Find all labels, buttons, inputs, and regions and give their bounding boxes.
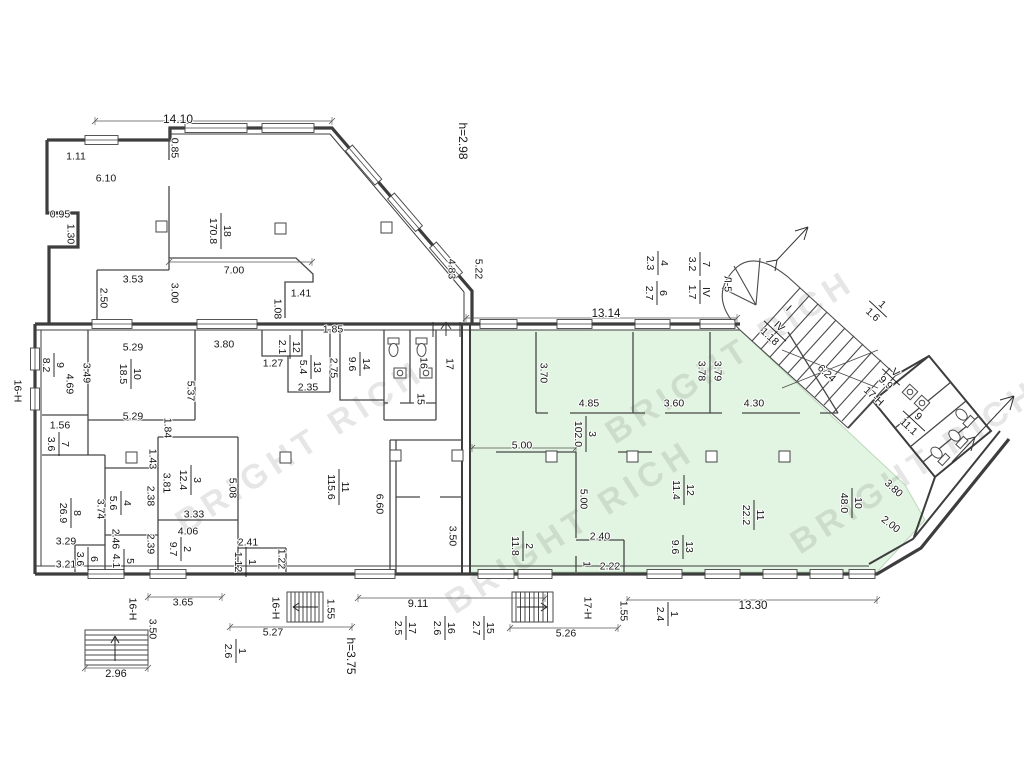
dim-label: 3.65 [173, 597, 194, 609]
fraction-label: 135.4 [297, 355, 323, 379]
svg-text:12.4: 12.4 [177, 470, 189, 491]
window-symbol [635, 320, 670, 329]
dim-label: 2.50 [97, 288, 109, 309]
dim-label: 2.75 [327, 358, 339, 379]
dim-label: 13.14 [592, 308, 621, 320]
dim-label: 1.11 [66, 151, 86, 163]
dim-label: 4.30 [744, 398, 765, 410]
svg-text:12: 12 [290, 341, 302, 353]
dim-label: 5.00 [512, 440, 533, 452]
staircase-bottom-left [85, 630, 148, 665]
window-symbol [88, 570, 124, 579]
toilet-icon [388, 338, 399, 357]
sink-icon [914, 395, 930, 411]
fraction-label: 826.9 [57, 498, 83, 528]
dim-label: 4.85 [579, 398, 600, 410]
svg-text:2: 2 [523, 543, 535, 549]
dim-label: 1.08 [271, 299, 283, 320]
svg-text:48.0: 48.0 [838, 493, 850, 514]
window-symbol [197, 320, 257, 329]
dim-label: 4.69 [63, 374, 75, 395]
svg-text:9.6: 9.6 [669, 540, 681, 555]
window-symbol [478, 570, 514, 579]
svg-text:5.4: 5.4 [297, 360, 309, 375]
svg-text:5.6: 5.6 [107, 496, 119, 511]
svg-text:1: 1 [668, 611, 680, 617]
svg-text:1: 1 [236, 648, 248, 654]
fraction-label: 18170.8 [207, 213, 233, 249]
dim-label: 5.29 [123, 342, 144, 354]
toilet-icon [416, 338, 427, 357]
dim-label: 16-Н [269, 597, 281, 620]
svg-text:2.6: 2.6 [222, 644, 234, 659]
dim-label: 0.95 [50, 209, 71, 221]
dim-label: 6.60 [373, 494, 385, 515]
window-symbol [518, 570, 552, 579]
svg-text:7: 7 [700, 261, 712, 267]
dim-label: 1.22 [275, 549, 287, 570]
fraction-label: 1018.5 [117, 359, 143, 389]
window-symbol [31, 388, 40, 410]
dim-label: 13.30 [739, 600, 768, 612]
fraction-label: 12.4 [654, 602, 680, 626]
svg-text:10: 10 [131, 368, 143, 380]
svg-text:2.4: 2.4 [654, 607, 666, 622]
dim-label: 3.74 [94, 499, 106, 520]
dim-label: 5.26 [556, 628, 577, 640]
window-symbol [355, 570, 395, 579]
svg-text:2.5: 2.5 [392, 621, 404, 636]
dim-label: 1.55 [617, 601, 629, 622]
dim-label: 1.56 [50, 420, 71, 432]
dim-label: 2.22 [600, 561, 621, 573]
fraction-label: 63.6 [74, 547, 100, 571]
window-symbol [763, 570, 797, 579]
dim-label: 16-Н [126, 598, 138, 621]
fraction-label: 172.5 [392, 616, 418, 640]
fraction-label: 12.6 [222, 639, 248, 663]
svg-text:26.9: 26.9 [57, 503, 69, 524]
window-symbol [346, 145, 382, 185]
window-symbol [700, 320, 735, 329]
dim-label: 7.00 [224, 265, 245, 277]
dim-label: 3.78 [695, 361, 707, 382]
dim-label: 1.30 [64, 224, 76, 245]
svg-text:11: 11 [339, 482, 351, 493]
column [280, 452, 291, 463]
column [126, 452, 137, 463]
dim-label: 2.46 [109, 529, 121, 550]
svg-text:15: 15 [484, 622, 496, 634]
svg-text:22.2: 22.2 [740, 505, 752, 526]
dim-label: 17 [443, 358, 455, 370]
sink-icon [420, 368, 432, 378]
fraction-label: 98.2 [40, 353, 66, 377]
dim-label: 17-Н [581, 597, 593, 620]
dim-label: 16-Н [11, 380, 23, 403]
dim-label: 3.50 [146, 619, 158, 640]
dim-label: 5.22 [472, 259, 484, 280]
fraction-label: 11.6 [860, 292, 895, 327]
svg-text:8: 8 [71, 510, 83, 516]
fraction-label: 162.6 [431, 616, 457, 640]
dim-label: 1.85 [323, 324, 344, 336]
dim-label: 1.84 [161, 418, 173, 439]
dim-label: 3.53 [123, 274, 144, 286]
column [275, 223, 286, 234]
exit-arrow-top [766, 227, 808, 271]
svg-text:11: 11 [754, 510, 766, 521]
fraction-label: 149.6 [346, 352, 372, 376]
window-symbol [92, 320, 132, 329]
svg-text:16: 16 [445, 622, 457, 634]
floor-plan-svg: BRIGHT RICHBRIGHT RICHBRIGHT RICHBRIGHT … [0, 0, 1024, 768]
dimension-line [227, 623, 355, 631]
window-symbol [480, 320, 517, 329]
svg-text:3.2: 3.2 [686, 257, 698, 272]
window-symbol [388, 193, 423, 231]
dim-label: 1.41 [291, 288, 312, 300]
dim-label: 3.29 [56, 536, 77, 548]
svg-text:2.6: 2.6 [431, 621, 443, 636]
window-symbol [810, 570, 843, 579]
dim-label: 3.21 [56, 559, 77, 571]
dim-label: 4.06 [178, 526, 199, 538]
svg-text:12: 12 [684, 484, 696, 496]
svg-text:8.2: 8.2 [40, 358, 52, 373]
dim-label: 6.10 [96, 173, 117, 185]
dim-label: 2.96 [105, 668, 126, 680]
svg-text:3.6: 3.6 [45, 437, 57, 452]
dim-label: 2.40 [590, 531, 611, 543]
svg-text:IV: IV [700, 287, 712, 297]
dim-label: 15 [414, 393, 426, 405]
dim-label: 3.60 [664, 398, 685, 410]
svg-text:3: 3 [586, 431, 598, 437]
dim-label: 3.70 [537, 363, 549, 384]
dim-label: 3.80 [214, 339, 235, 351]
svg-text:115.6: 115.6 [325, 474, 337, 500]
window-symbol [185, 124, 247, 133]
fraction-label: 45.6 [107, 491, 133, 515]
svg-text:18: 18 [221, 225, 233, 237]
dim-label: 5.08 [226, 478, 238, 499]
column [381, 222, 392, 233]
dim-label: Л-5 [721, 276, 733, 292]
dim-label: 3.49 [80, 363, 92, 384]
svg-text:1: 1 [246, 559, 258, 565]
window-symbol [262, 124, 314, 133]
svg-text:1.7: 1.7 [686, 285, 698, 300]
dim-label: 0.85 [168, 138, 180, 159]
fraction-label: 152.7 [470, 616, 496, 640]
dim-label: 17-Н [861, 384, 886, 408]
dim-label: 9.11 [408, 598, 429, 610]
window-symbol [31, 348, 40, 370]
staircase-entrance-left [287, 592, 323, 622]
svg-text:14: 14 [360, 358, 372, 370]
window-symbol [849, 570, 875, 579]
fraction-label: IV1.7 [686, 280, 712, 304]
dim-label: 2.35 [298, 382, 319, 394]
svg-text:102.0: 102.0 [572, 421, 584, 447]
dim-label: 3.81 [160, 473, 172, 494]
window-symbol [557, 320, 592, 329]
column [546, 451, 557, 462]
dim-label: 3.33 [184, 509, 205, 521]
column [779, 451, 790, 462]
svg-text:4.1: 4.1 [110, 554, 122, 569]
svg-text:2.1: 2.1 [276, 340, 288, 355]
sink-icon [902, 384, 918, 400]
svg-text:18.5: 18.5 [117, 364, 129, 385]
fraction-label: 11115.6 [325, 469, 351, 505]
svg-text:13: 13 [311, 361, 323, 373]
svg-text:2: 2 [181, 546, 193, 552]
svg-text:7: 7 [59, 441, 71, 447]
svg-text:9.7: 9.7 [167, 542, 179, 557]
column [390, 450, 401, 461]
window-symbol [705, 570, 740, 579]
column [452, 450, 463, 461]
svg-text:3.6: 3.6 [74, 552, 86, 567]
dim-label: 16 [417, 357, 429, 369]
svg-text:11.4: 11.4 [670, 480, 682, 500]
svg-text:170.8: 170.8 [207, 218, 219, 244]
dim-label: 3.00 [168, 283, 180, 304]
dim-label: h=2.98 [456, 122, 470, 159]
window-symbol [85, 136, 118, 145]
svg-text:1.12: 1.12 [232, 552, 244, 573]
fraction-label: 73.2 [686, 252, 712, 276]
column [627, 451, 638, 462]
svg-text:2.7: 2.7 [643, 286, 655, 301]
svg-text:6: 6 [657, 290, 669, 296]
dim-label: 1.55 [324, 599, 336, 620]
column [706, 451, 717, 462]
dim-label: 1.27 [263, 358, 284, 370]
fraction-label: 62.7 [643, 281, 669, 305]
dim-label: 4.83 [445, 259, 457, 280]
dim-label: 1 [580, 561, 592, 567]
dim-label: 5.00 [577, 489, 589, 510]
dim-label: 2.38 [144, 486, 156, 507]
column [156, 221, 167, 232]
dim-label: 1.43 [146, 449, 158, 470]
svg-text:2.7: 2.7 [470, 621, 482, 636]
sink-icon [394, 368, 406, 378]
dim-label: 5.37 [184, 381, 196, 402]
dim-label: 3.79 [711, 361, 723, 382]
dim-label: 2.39 [144, 534, 156, 555]
dim-label: 14.10 [163, 112, 193, 126]
dim-label: 2.41 [238, 537, 259, 549]
floor-plan-page: { "plan": { "green_fill": "#e2f5e2", "wa… [0, 0, 1024, 768]
window-symbol [150, 570, 186, 579]
fraction-label: 73.6 [45, 432, 71, 456]
svg-text:5: 5 [124, 558, 136, 564]
svg-text:3: 3 [191, 477, 203, 483]
svg-text:9.6: 9.6 [346, 357, 358, 372]
dim-label: 3.50 [446, 526, 458, 547]
dim-label: h=3.75 [344, 637, 358, 674]
svg-text:17: 17 [406, 622, 418, 634]
svg-text:10: 10 [852, 497, 864, 509]
dim-label: 5.29 [123, 411, 144, 423]
svg-text:V: V [888, 366, 901, 380]
window-symbol [647, 570, 682, 579]
svg-text:13: 13 [683, 541, 695, 553]
svg-text:4: 4 [658, 260, 670, 266]
svg-text:4: 4 [121, 500, 133, 506]
svg-text:2.3: 2.3 [644, 256, 656, 271]
svg-text:11.8: 11.8 [509, 536, 521, 556]
fraction-label: 42.3 [644, 251, 670, 275]
svg-text:9: 9 [54, 362, 66, 368]
svg-text:6: 6 [88, 556, 100, 562]
dim-label: 5.27 [263, 627, 284, 639]
